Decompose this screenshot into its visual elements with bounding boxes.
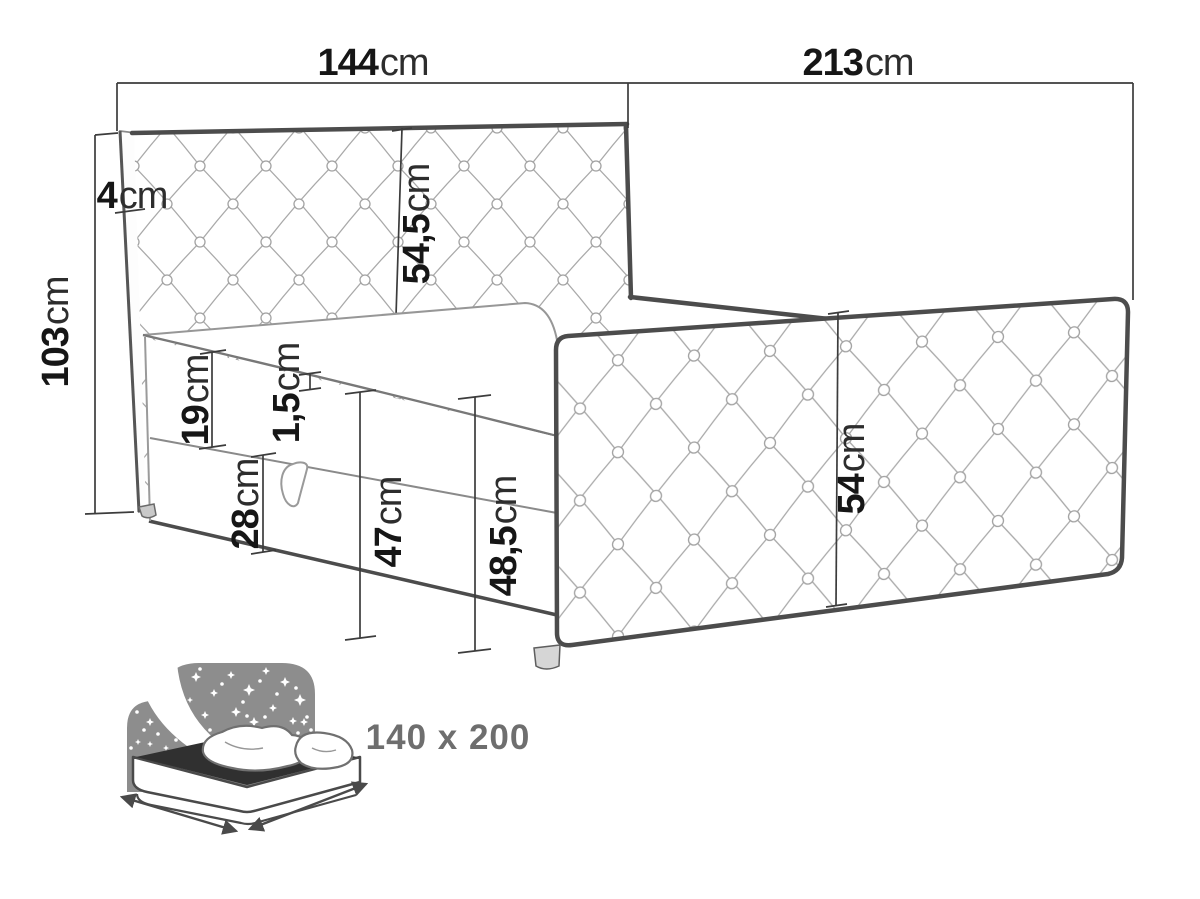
- headboard-foot: [139, 504, 156, 518]
- dim-label-side-total-height: 48,5cm: [485, 476, 523, 597]
- bed-dimension-diagram: 144cm 213cm 103cm 4cm 54,5cm 19cm 1,5cm …: [0, 0, 1200, 899]
- dim-label-headboard-width: 144cm: [317, 44, 428, 82]
- icon-pillow-right: [295, 733, 352, 769]
- dim-label-topper-seam-height: 1,5cm: [268, 343, 306, 443]
- dim-label-headboard-thickness: 4cm: [97, 177, 168, 215]
- dim-label-base-height: 28cm: [227, 459, 265, 550]
- dim-label-total-height: 103cm: [37, 276, 75, 387]
- dim-label-side-height: 47cm: [370, 477, 408, 568]
- mattress-size-label: 140 x 200: [366, 718, 531, 758]
- base-foot: [534, 645, 560, 669]
- storage-bed-icon: [122, 663, 366, 831]
- bed-line-drawing: [0, 0, 1200, 899]
- dim-label-headboard-panel-height: 54,5cm: [398, 164, 436, 285]
- dim-label-mattress-height: 19cm: [177, 355, 215, 446]
- dim-label-rail-height: 54cm: [833, 424, 871, 515]
- dim-label-bed-length: 213cm: [802, 44, 913, 82]
